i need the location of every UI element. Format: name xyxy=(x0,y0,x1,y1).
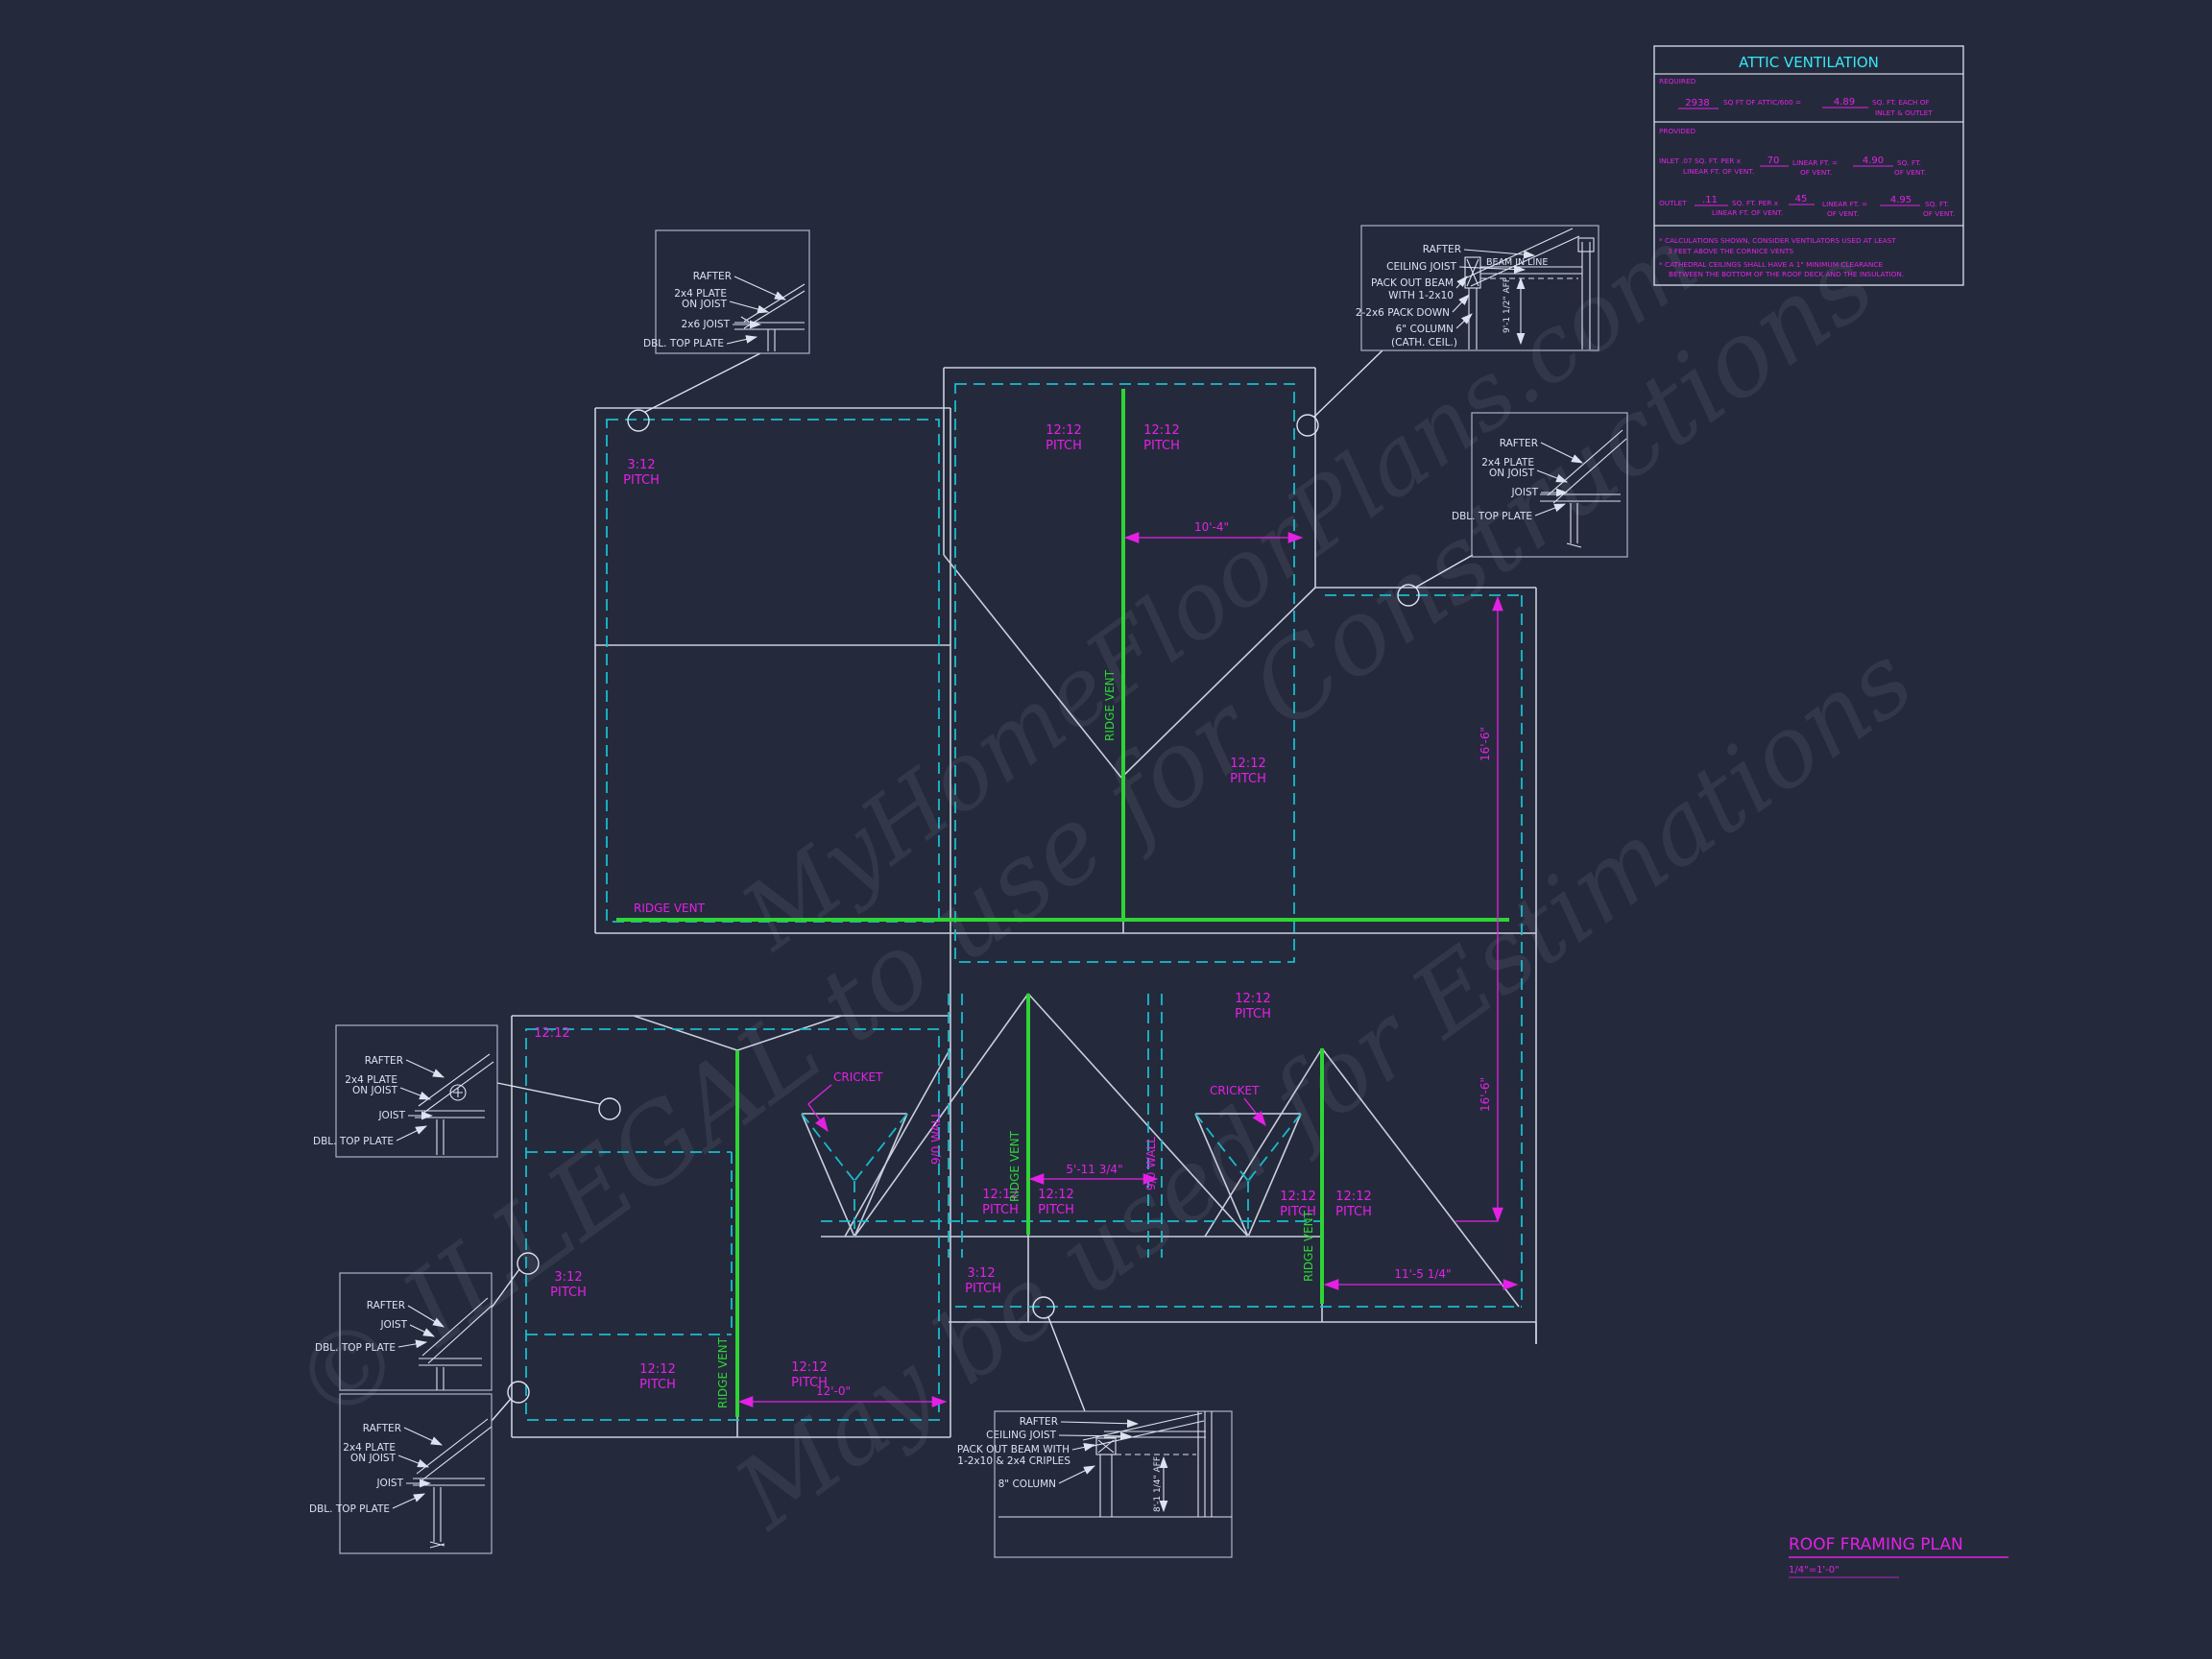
attic-outlet-rate-suffix2: LINEAR FT. OF VENT. xyxy=(1712,208,1783,217)
ridge-vent-label-p2: RIDGE VENT xyxy=(1302,1210,1315,1282)
attic-required-value: 2938 xyxy=(1685,98,1709,108)
pitch-b-left: 12:12 xyxy=(1046,423,1081,438)
pitch-p2-right-word: PITCH xyxy=(1335,1205,1372,1219)
attic-inlet-mid2: OF VENT. xyxy=(1800,168,1832,177)
wall-label-left: 9/0 WALL xyxy=(929,1111,943,1165)
attic-table-title: ATTIC VENTILATION xyxy=(1739,54,1879,71)
d2-column-label: 6" COLUMN xyxy=(1396,324,1454,335)
ridge-vent-label-b: RIDGE VENT xyxy=(1103,669,1117,741)
d7-cjoist-label: CEILING JOIST xyxy=(986,1430,1056,1441)
attic-inlet-suffix2: OF VENT. xyxy=(1894,168,1926,177)
pitch-d-left: 12:12 xyxy=(639,1362,675,1377)
ridge-vent-label-p1: RIDGE VENT xyxy=(1008,1130,1022,1202)
attic-inlet-mid1: LINEAR FT. = xyxy=(1792,158,1838,167)
pitch-v-left-word: PITCH xyxy=(982,1203,1019,1217)
d2-rafter-label: RAFTER xyxy=(1423,244,1461,255)
roof-framing-plan-sheet: MyHomeFloorPlans.com © ILLEGAL to use fo… xyxy=(0,0,2212,1659)
pitch-porch: 3:12 xyxy=(967,1266,995,1281)
d2-aff-dim: 9'-1 1/2" AFF xyxy=(1503,277,1512,333)
d3-onjoist-label: ON JOIST xyxy=(1489,468,1535,479)
attic-required-mid: SQ FT OF ATTIC/600 = xyxy=(1723,98,1801,107)
d4-joist-label: JOIST xyxy=(377,1110,405,1121)
attic-note-2b: BETWEEN THE BOTTOM OF THE ROOF DECK AND … xyxy=(1669,270,1904,278)
attic-required-suffix2: INLET & OUTLET xyxy=(1875,108,1933,117)
d4-onjoist-label: ON JOIST xyxy=(352,1085,398,1096)
d4-rafter-label: RAFTER xyxy=(365,1055,403,1067)
cricket-label-left: CRICKET xyxy=(833,1070,883,1084)
pitch-center: 12:12 xyxy=(1230,757,1265,771)
d7-rafter-label: RAFTER xyxy=(1020,1416,1058,1428)
d7-packout-label1: PACK OUT BEAM WITH xyxy=(957,1444,1070,1455)
attic-inlet-prefix: INLET .07 SQ. FT. PER x xyxy=(1659,156,1742,165)
sheet-title: ROOF FRAMING PLAN xyxy=(1789,1535,1963,1554)
attic-outlet-suffix2: OF VENT. xyxy=(1923,209,1955,218)
pitch-d-top: 12:12 xyxy=(534,1026,569,1041)
dim-12-0: 12'-0" xyxy=(816,1384,851,1398)
pitch-a: 3:12 xyxy=(627,458,655,472)
pitch-p2-right: 12:12 xyxy=(1335,1190,1371,1204)
pitch-b-right-word: PITCH xyxy=(1143,439,1180,453)
d2-packdown-label: 2-2x6 PACK DOWN xyxy=(1356,307,1450,319)
attic-outlet-result: 4.95 xyxy=(1890,195,1911,205)
attic-inlet-length: 70 xyxy=(1767,156,1780,166)
attic-required-result: 4.89 xyxy=(1834,97,1855,108)
d1-joist-label: 2x6 JOIST xyxy=(682,319,731,330)
attic-outlet-rate-suffix1: SQ. FT. PER x xyxy=(1732,199,1779,207)
dim-10-4: 10'-4" xyxy=(1194,520,1229,534)
attic-outlet-label: OUTLET xyxy=(1659,199,1687,207)
attic-inlet-prefix2: LINEAR FT. OF VENT. xyxy=(1683,167,1754,176)
pitch-d-right: 12:12 xyxy=(791,1360,827,1375)
pitch-b-right: 12:12 xyxy=(1143,423,1179,438)
pitch-d-word: PITCH xyxy=(550,1286,587,1300)
sheet-scale: 1/4"=1'-0" xyxy=(1789,1565,1839,1575)
d1-rafter-label: RAFTER xyxy=(693,271,732,282)
pitch-p2-left: 12:12 xyxy=(1280,1190,1315,1204)
pitch-center-word: PITCH xyxy=(1230,772,1266,786)
pitch-v-right-word: PITCH xyxy=(1038,1203,1074,1217)
d2-cjoist-label: CEILING JOIST xyxy=(1386,261,1456,273)
attic-inlet-result: 4.90 xyxy=(1863,156,1884,166)
d1-onjoist-label: ON JOIST xyxy=(682,299,728,310)
attic-provided-label: PROVIDED xyxy=(1659,127,1695,135)
ridge-vent-label-d: RIDGE VENT xyxy=(716,1336,730,1408)
wall-label-right: 9/0 WALL xyxy=(1144,1137,1158,1190)
d6-rafter-label: RAFTER xyxy=(363,1423,401,1434)
attic-required-label: REQUIRED xyxy=(1659,77,1696,85)
d6-joist-label: JOIST xyxy=(375,1478,403,1489)
ridge-vent-label-main: RIDGE VENT xyxy=(634,902,706,915)
attic-outlet-mid2: OF VENT. xyxy=(1827,209,1859,218)
d1-topplate-label: DBL. TOP PLATE xyxy=(643,338,724,349)
d2-beaminline-label: BEAM IN LINE xyxy=(1486,257,1548,268)
attic-outlet-rate: .11 xyxy=(1702,195,1718,205)
pitch-v-right: 12:12 xyxy=(1038,1188,1073,1202)
attic-required-suffix1: SQ. FT. EACH OF xyxy=(1872,98,1930,107)
attic-note-1a: * CALCULATIONS SHOWN, CONSIDER VENTILATO… xyxy=(1659,236,1896,245)
d7-packout-label2: 1-2x10 & 2x4 CRIPLES xyxy=(957,1455,1070,1467)
dim-16-6-lower: 16'-6" xyxy=(1479,1077,1492,1112)
attic-note-2a: * CATHEDRAL CEILINGS SHALL HAVE A 1" MIN… xyxy=(1659,260,1883,269)
d3-joist-label: JOIST xyxy=(1510,487,1538,498)
attic-outlet-mid1: LINEAR FT. = xyxy=(1822,200,1867,208)
attic-note-1b: 3 FEET ABOVE THE CORNICE VENTS xyxy=(1668,247,1793,255)
d7-aff-dim: 8'-1 1/4" AFF xyxy=(1153,1456,1163,1512)
attic-outlet-length: 45 xyxy=(1795,194,1808,204)
pitch-lower-center-word: PITCH xyxy=(1235,1007,1271,1022)
d4-topplate-label: DBL. TOP PLATE xyxy=(313,1136,394,1147)
d6-topplate-label: DBL. TOP PLATE xyxy=(309,1503,390,1515)
pitch-b-left-word: PITCH xyxy=(1046,439,1082,453)
attic-inlet-suffix1: SQ. FT. xyxy=(1897,158,1921,167)
attic-outlet-suffix1: SQ. FT. xyxy=(1925,200,1949,208)
d3-rafter-label: RAFTER xyxy=(1500,438,1538,449)
pitch-lower-center: 12:12 xyxy=(1235,992,1270,1006)
dim-11-5: 11'-5 1/4" xyxy=(1394,1267,1451,1281)
pitch-d: 3:12 xyxy=(554,1270,582,1285)
d5-rafter-label: RAFTER xyxy=(367,1300,405,1311)
d5-topplate-label: DBL. TOP PLATE xyxy=(315,1342,396,1354)
pitch-d-left-word: PITCH xyxy=(639,1378,676,1392)
d2-cathceil-label: (CATH. CEIL.) xyxy=(1391,337,1457,349)
d5-joist-label: JOIST xyxy=(379,1319,407,1331)
cricket-label-right: CRICKET xyxy=(1210,1084,1260,1097)
pitch-a-word: PITCH xyxy=(623,473,660,488)
d2-packout-label1: PACK OUT BEAM xyxy=(1371,277,1454,289)
pitch-porch-word: PITCH xyxy=(965,1282,1001,1296)
d6-onjoist-label: ON JOIST xyxy=(350,1453,397,1464)
d7-column-label: 8" COLUMN xyxy=(998,1479,1056,1490)
d2-packout-label2: WITH 1-2x10 xyxy=(1388,290,1454,301)
d3-topplate-label: DBL. TOP PLATE xyxy=(1452,511,1532,522)
dim-5-11: 5'-11 3/4" xyxy=(1066,1163,1122,1176)
dim-16-6-upper: 16'-6" xyxy=(1479,727,1492,761)
